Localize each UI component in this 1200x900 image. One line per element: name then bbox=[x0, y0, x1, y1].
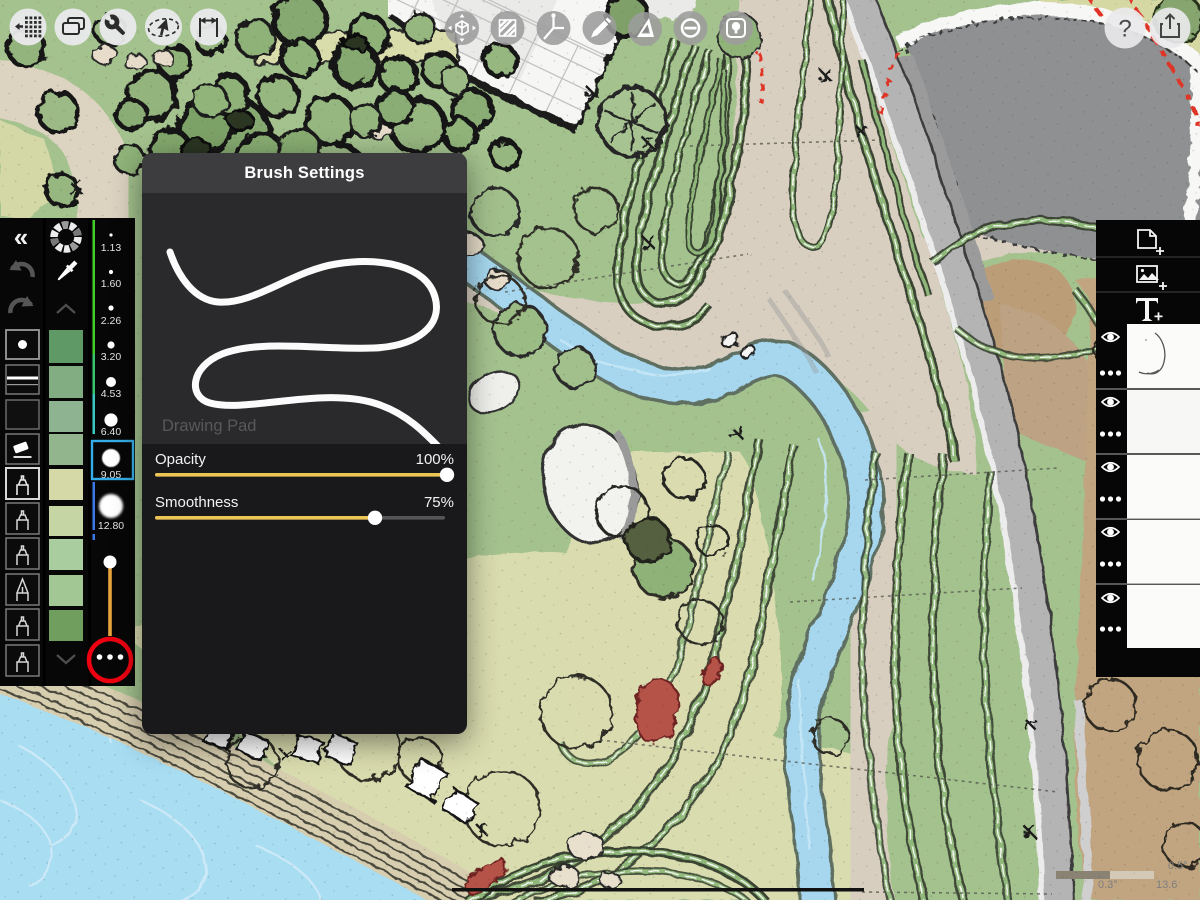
svg-text:1.13: 1.13 bbox=[101, 242, 122, 254]
svg-text:3.20: 3.20 bbox=[101, 351, 122, 363]
svg-text:Drawing Pad: Drawing Pad bbox=[162, 417, 256, 435]
svg-text:12.80: 12.80 bbox=[98, 520, 124, 532]
svg-text:6.40: 6.40 bbox=[101, 426, 122, 438]
svg-text:?: ? bbox=[1118, 16, 1131, 43]
svg-text:2.26: 2.26 bbox=[101, 315, 122, 327]
svg-text:1.60: 1.60 bbox=[101, 278, 122, 290]
svg-text:«: « bbox=[14, 222, 28, 252]
svg-text:4.53: 4.53 bbox=[101, 388, 122, 400]
